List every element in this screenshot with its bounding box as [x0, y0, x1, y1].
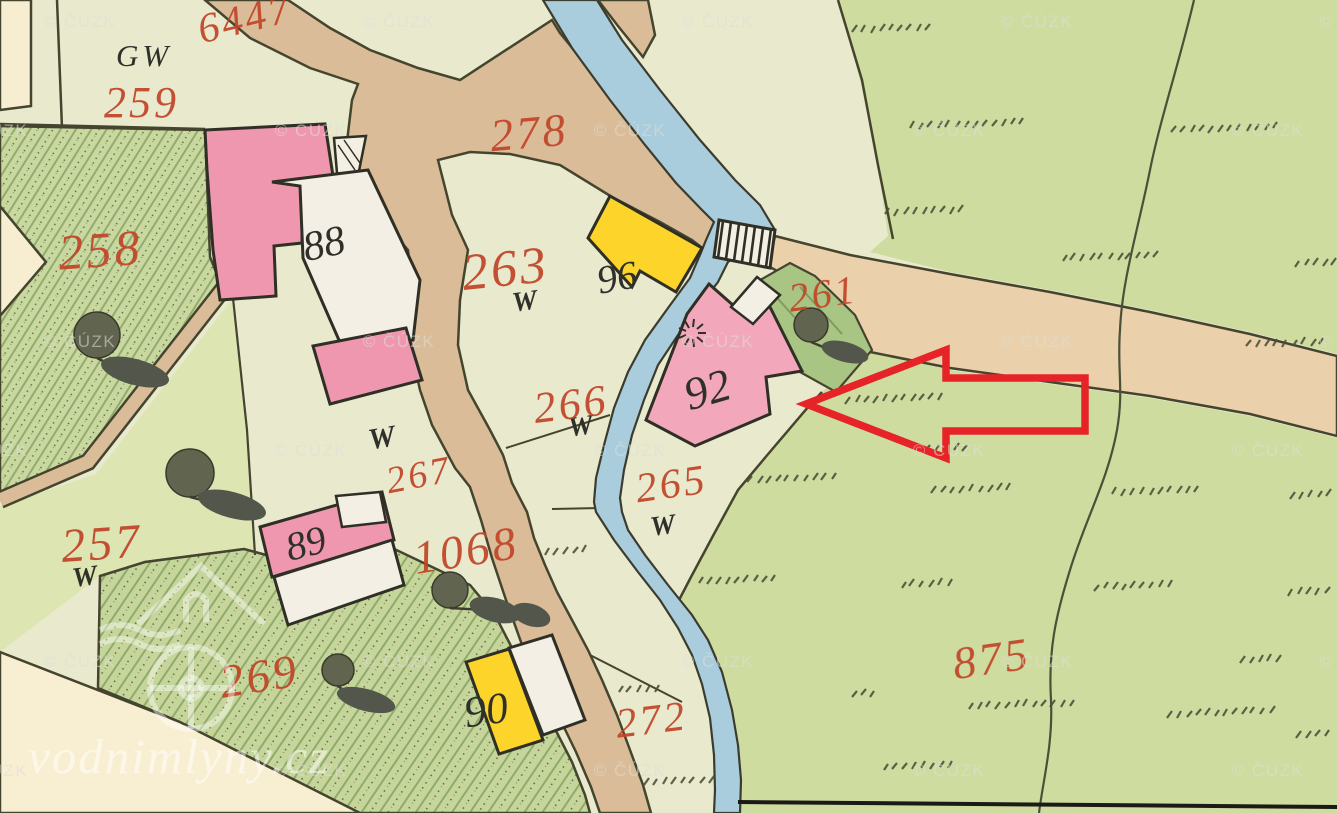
svg-text:© ČÚZK: © ČÚZK — [1001, 332, 1074, 351]
svg-text:259: 259 — [104, 78, 179, 127]
svg-text:© ČÚZK: © ČÚZK — [913, 441, 986, 460]
svg-text:© ČÚZK: © ČÚZK — [1232, 121, 1305, 140]
svg-text:© ČÚZK: © ČÚZK — [1320, 652, 1337, 671]
svg-text:GW: GW — [116, 38, 172, 73]
svg-text:272: 272 — [613, 693, 690, 747]
svg-text:vodnimlyny.cz: vodnimlyny.cz — [28, 729, 330, 784]
svg-text:© ČÚZK: © ČÚZK — [594, 441, 667, 460]
svg-text:© ČÚZK: © ČÚZK — [682, 332, 755, 351]
svg-text:261: 261 — [786, 266, 861, 320]
svg-text:© ČÚZK: © ČÚZK — [913, 761, 986, 780]
svg-text:263: 263 — [459, 236, 551, 302]
svg-text:© ČÚZK: © ČÚZK — [682, 652, 755, 671]
svg-text:© ČÚZK: © ČÚZK — [594, 121, 667, 140]
svg-text:278: 278 — [488, 104, 570, 162]
svg-text:© ČÚZK: © ČÚZK — [363, 12, 436, 31]
svg-text:258: 258 — [56, 219, 144, 281]
svg-text:© ČÚZK: © ČÚZK — [363, 332, 436, 351]
svg-text:© ČÚZK: © ČÚZK — [44, 652, 117, 671]
svg-text:© ČÚZK: © ČÚZK — [1232, 441, 1305, 460]
svg-text:© ČÚZK: © ČÚZK — [275, 121, 348, 140]
svg-text:© ČÚZK: © ČÚZK — [44, 332, 117, 351]
svg-text:© ČÚZK: © ČÚZK — [0, 761, 28, 780]
svg-text:90: 90 — [461, 683, 511, 738]
svg-text:© ČÚZK: © ČÚZK — [1320, 332, 1337, 351]
svg-text:© ČÚZK: © ČÚZK — [1320, 12, 1337, 31]
svg-text:© ČÚZK: © ČÚZK — [0, 441, 28, 460]
svg-text:© ČÚZK: © ČÚZK — [275, 441, 348, 460]
svg-text:© ČÚZK: © ČÚZK — [363, 652, 436, 671]
svg-text:© ČÚZK: © ČÚZK — [44, 12, 117, 31]
svg-text:© ČÚZK: © ČÚZK — [1001, 652, 1074, 671]
svg-text:© ČÚZK: © ČÚZK — [1232, 761, 1305, 780]
svg-text:© ČÚZK: © ČÚZK — [1001, 12, 1074, 31]
svg-text:© ČÚZK: © ČÚZK — [594, 761, 667, 780]
svg-text:257: 257 — [60, 514, 144, 573]
svg-text:266: 266 — [531, 375, 611, 433]
svg-text:© ČÚZK: © ČÚZK — [0, 121, 28, 140]
svg-text:© ČÚZK: © ČÚZK — [913, 121, 986, 140]
svg-text:© ČÚZK: © ČÚZK — [682, 12, 755, 31]
svg-text:96: 96 — [593, 251, 640, 302]
